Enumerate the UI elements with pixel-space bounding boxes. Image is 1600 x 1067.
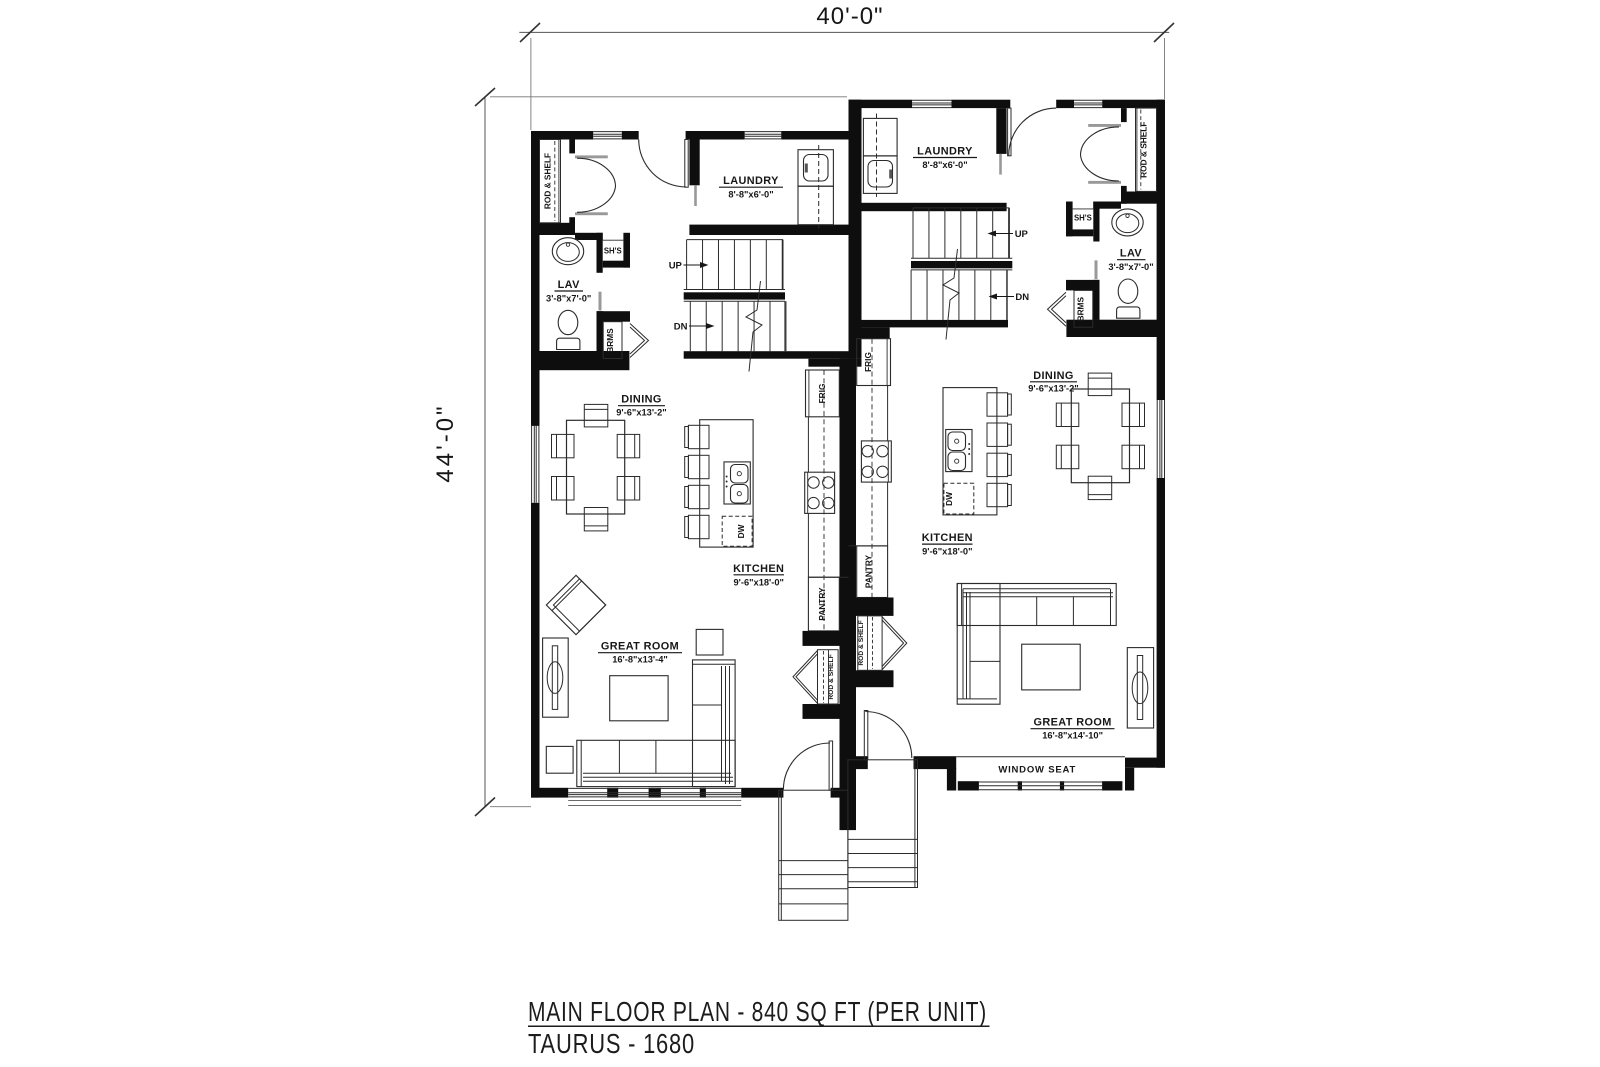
svg-text:3'-8"x7'-0": 3'-8"x7'-0" [1108, 262, 1153, 272]
svg-text:BRMS: BRMS [1076, 297, 1086, 322]
svg-text:UP: UP [669, 261, 683, 272]
svg-text:DN: DN [1015, 292, 1029, 303]
svg-text:ROD & SHELF: ROD & SHELF [828, 654, 835, 699]
svg-text:ROD & SHELF: ROD & SHELF [858, 620, 865, 665]
svg-text:ROD & SHELF: ROD & SHELF [543, 153, 553, 209]
svg-text:LAV: LAV [1120, 248, 1143, 260]
svg-text:LAUNDRY: LAUNDRY [917, 145, 973, 157]
svg-text:LAUNDRY: LAUNDRY [723, 175, 779, 187]
svg-text:DN: DN [674, 322, 688, 333]
svg-text:GREAT ROOM: GREAT ROOM [601, 641, 679, 653]
svg-text:ROD & SHELF: ROD & SHELF [1139, 122, 1149, 178]
svg-text:44'-0": 44'-0" [432, 403, 459, 482]
svg-text:SH'S: SH'S [604, 247, 622, 256]
svg-text:9'-6"x18'-0": 9'-6"x18'-0" [733, 577, 783, 587]
svg-text:DW: DW [736, 524, 746, 538]
svg-text:16'-8"x14'-10": 16'-8"x14'-10" [1042, 731, 1103, 741]
svg-text:SH'S: SH'S [1074, 214, 1092, 223]
svg-text:MAIN FLOOR PLAN - 840 SQ FT (P: MAIN FLOOR PLAN - 840 SQ FT (PER UNIT) [528, 996, 987, 1027]
svg-text:9'-6"x13'-2": 9'-6"x13'-2" [616, 408, 666, 418]
svg-text:9'-6"x18'-0": 9'-6"x18'-0" [922, 547, 972, 557]
svg-text:FRIG: FRIG [863, 352, 873, 372]
svg-text:DW: DW [944, 492, 954, 506]
svg-text:FRIG: FRIG [817, 384, 827, 404]
svg-text:DINING: DINING [621, 394, 662, 406]
svg-text:TAURUS - 1680: TAURUS - 1680 [528, 1028, 695, 1059]
svg-text:40'-0": 40'-0" [816, 3, 883, 30]
svg-text:LAV: LAV [558, 279, 581, 291]
svg-text:PANTRY: PANTRY [817, 587, 827, 621]
svg-text:16'-8"x13'-4": 16'-8"x13'-4" [612, 655, 668, 665]
svg-text:WINDOW SEAT: WINDOW SEAT [998, 765, 1076, 776]
svg-text:KITCHEN: KITCHEN [922, 532, 973, 544]
svg-text:DINING: DINING [1033, 370, 1074, 382]
svg-text:8'-8"x6'-0": 8'-8"x6'-0" [728, 190, 773, 200]
svg-text:KITCHEN: KITCHEN [733, 563, 784, 575]
svg-text:3'-8"x7'-0": 3'-8"x7'-0" [546, 294, 591, 304]
svg-text:BRMS: BRMS [605, 328, 615, 353]
svg-text:GREAT ROOM: GREAT ROOM [1033, 717, 1111, 729]
svg-text:8'-8"x6'-0": 8'-8"x6'-0" [922, 160, 967, 170]
svg-text:PANTRY: PANTRY [864, 554, 874, 588]
svg-text:UP: UP [1015, 229, 1029, 240]
